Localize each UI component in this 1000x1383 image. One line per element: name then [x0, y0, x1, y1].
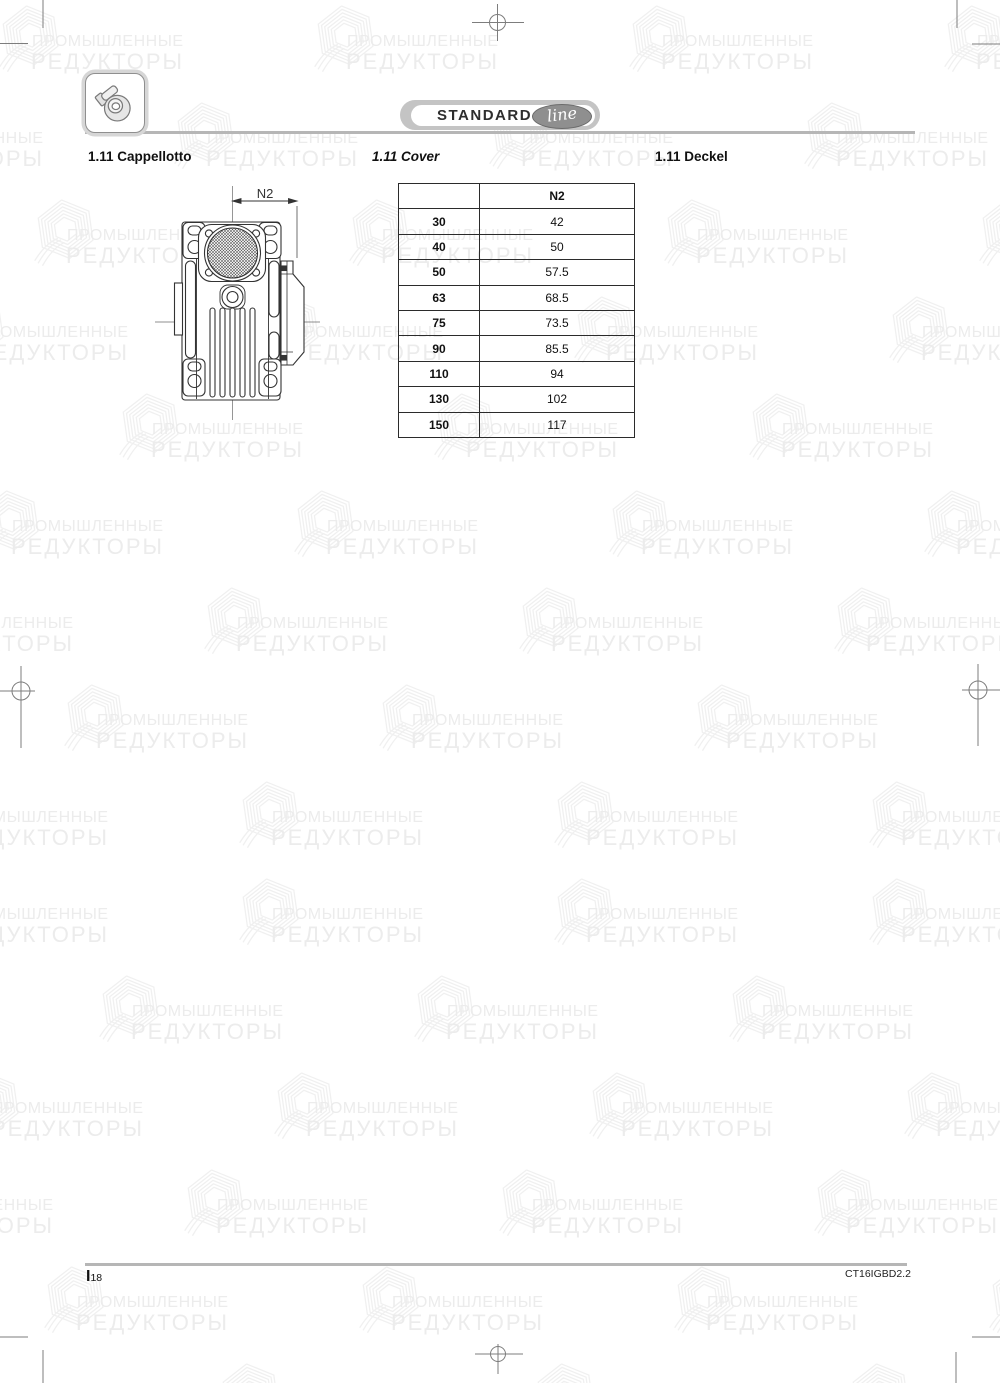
watermark-line1: ПРОМЫШЛЕННЫЕ: [937, 1100, 1000, 1118]
watermark-line1: ПРОМЫШЛЕННЫЕ: [412, 712, 564, 730]
watermark-line1: ПРОМЫШЛЕННЫЕ: [97, 712, 249, 730]
watermark: ПРОМЫШЛЕННЫЕРЕДУКТОРЫ: [975, 199, 1000, 265]
watermark-hexagon-logo: [546, 873, 628, 949]
watermark-line1: ПРОМЫШЛЕННЫЕ: [622, 1100, 774, 1118]
watermark-line2: РЕДУКТОРЫ: [151, 437, 304, 463]
watermark-line1: ПРОМЫШЛЕННЫЕ: [782, 421, 934, 439]
watermark-line2: РЕДУКТОРЫ: [586, 922, 739, 948]
watermark-line1: ПРОМЫШЛЕННЫЕ: [0, 906, 109, 924]
watermark: ПРОМЫШЛЕННЫЕРЕДУКТОРЫ: [985, 1266, 1000, 1332]
watermark-line2: РЕДУКТОРЫ: [956, 534, 1000, 560]
watermark-line1: ПРОМЫШЛЕННЫЕ: [697, 227, 849, 245]
watermark-line2: РЕДУКТОРЫ: [621, 1116, 774, 1142]
watermark-line1: ПРОМЫШЛЕННЫЕ: [392, 1294, 544, 1312]
watermark-line2: РЕДУКТОРЫ: [466, 437, 619, 463]
watermark: ПРОМЫШЛЕННЫЕРЕДУКТОРЫ: [235, 781, 450, 847]
watermark-line2: РЕДУКТОРЫ: [0, 631, 74, 657]
watermark-line2: РЕДУКТОРЫ: [391, 1310, 544, 1336]
watermark: ПРОМЫШЛЕННЫЕРЕДУКТОРЫ: [0, 296, 155, 362]
watermark: ПРОМЫШЛЕННЫЕРЕДУКТОРЫ: [200, 587, 415, 653]
gearbox-cover-drawing: N2: [150, 180, 390, 425]
watermark-line2: РЕДУКТОРЫ: [306, 1116, 459, 1142]
watermark-hexagon-logo: [0, 291, 18, 367]
watermark: ПРОМЫШЛЕННЫЕРЕДУКТОРЫ: [550, 781, 765, 847]
watermark-line1: ПРОМЫШЛЕННЫЕ: [867, 615, 1000, 633]
right-column-slot-upper: [269, 261, 279, 317]
watermark-line1: ПРОМЫШЛЕННЫЕ: [77, 1294, 229, 1312]
section-title-english: 1.11 Cover: [372, 149, 439, 164]
table-row: 7573.5: [399, 310, 635, 335]
watermark-line2: РЕДУКТОРЫ: [0, 1116, 144, 1142]
standard-line-badge: STANDARD line: [400, 100, 600, 130]
watermark: ПРОМЫШЛЕННЫЕРЕДУКТОРЫ: [585, 1072, 800, 1138]
watermark-line2: РЕДУКТОРЫ: [271, 825, 424, 851]
watermark: ПРОМЫШЛЕННЫЕРЕДУКТОРЫ: [900, 1072, 1000, 1138]
watermark: ПРОМЫШЛЕННЫЕРЕДУКТОРЫ: [690, 684, 905, 750]
watermark-hexagon-logo: [0, 1067, 33, 1143]
dimension-label: N2: [257, 186, 274, 201]
watermark-line1: ПРОМЫШЛЕННЫЕ: [447, 1003, 599, 1021]
watermark-hexagon-logo: [826, 582, 908, 658]
watermark-line2: РЕДУКТОРЫ: [326, 534, 479, 560]
watermark: ПРОМЫШЛЕННЫЕРЕДУКТОРЫ: [375, 684, 590, 750]
watermark-line2: РЕДУКТОРЫ: [76, 1310, 229, 1336]
watermark: ПРОМЫШЛЕННЫЕРЕДУКТОРЫ: [310, 5, 525, 71]
watermark-line1: ПРОМЫШЛЕННЫЕ: [132, 1003, 284, 1021]
watermark-line2: РЕДУКТОРЫ: [0, 146, 44, 172]
watermark: ПРОМЫШЛЕННЫЕРЕДУКТОРЫ: [0, 5, 210, 71]
watermark-line2: РЕДУКТОРЫ: [696, 243, 849, 269]
watermark-line1: ПРОМЫШЛЕННЫЕ: [762, 1003, 914, 1021]
watermark-line1: ПРОМЫШЛЕННЫЕ: [347, 33, 499, 51]
watermark-line2: РЕДУКТОРЫ: [131, 1019, 284, 1045]
badge-inner: STANDARD line: [411, 105, 595, 126]
watermark-hexagon-logo: [511, 582, 593, 658]
n2-column-header: N2: [480, 184, 635, 209]
watermark-line2: РЕДУКТОРЫ: [0, 340, 129, 366]
watermark-line2: РЕДУКТОРЫ: [836, 146, 989, 172]
left-tab: [175, 283, 183, 335]
watermark-line2: РЕДУКТОРЫ: [726, 728, 879, 754]
watermark-line2: РЕДУКТОРЫ: [531, 1213, 684, 1239]
watermark-line2: РЕДУКТОРЫ: [206, 146, 359, 172]
table-row: 150117: [399, 412, 635, 437]
watermark: ПРОМЫШЛЕННЫЕРЕДУКТОРЫ: [40, 1266, 255, 1332]
watermark: ПРОМЫШЛЕННЫЕРЕДУКТОРЫ: [0, 102, 70, 168]
right-column-slot-lower: [269, 332, 279, 359]
watermark-line2: РЕДУКТОРЫ: [706, 1310, 859, 1336]
watermark-line2: РЕДУКТОРЫ: [446, 1019, 599, 1045]
watermark-line1: ПРОМЫШЛЕННЫЕ: [0, 324, 129, 342]
watermark: ПРОМЫШЛЕННЫЕРЕДУКТОРЫ: [0, 1363, 115, 1383]
watermark-hexagon-logo: [686, 679, 768, 755]
watermark: ПРОМЫШЛЕННЫЕРЕДУКТОРЫ: [95, 975, 310, 1041]
watermark: ПРОМЫШЛЕННЫЕРЕДУКТОРЫ: [0, 393, 15, 459]
watermark: ПРОМЫШЛЕННЫЕРЕДУКТОРЫ: [0, 587, 100, 653]
watermark-line1: ПРОМЫШЛЕННЫЕ: [902, 906, 1000, 924]
watermark: ПРОМЫШЛЕННЫЕРЕДУКТОРЫ: [495, 1169, 710, 1235]
watermark-line1: ПРОМЫШЛЕННЫЕ: [662, 33, 814, 51]
watermark-hexagon-logo: [916, 485, 998, 561]
watermark-line2: РЕДУКТОРЫ: [271, 922, 424, 948]
watermark-line2: РЕДУКТОРЫ: [96, 728, 249, 754]
watermark-hexagon-logo: [406, 970, 488, 1046]
watermark-hexagon-logo: [351, 1261, 433, 1337]
watermark: ПРОМЫШЛЕННЫЕРЕДУКТОРЫ: [0, 1072, 170, 1138]
watermark-hexagon-logo: [896, 1067, 978, 1143]
watermark-hexagon-logo: [0, 485, 53, 561]
watermark-line2: РЕДУКТОРЫ: [411, 728, 564, 754]
watermark-line1: ПРОМЫШЛЕННЫЕ: [0, 809, 109, 827]
watermark-line2: РЕДУКТОРЫ: [846, 1213, 999, 1239]
watermark-line2: РЕДУКТОРЫ: [641, 534, 794, 560]
watermark: ПРОМЫШЛЕННЫЕРЕДУКТОРЫ: [410, 975, 625, 1041]
watermark: ПРОМЫШЛЕННЫЕРЕДУКТОРЫ: [810, 1169, 1000, 1235]
watermark: ПРОМЫШЛЕННЫЕРЕДУКТОРЫ: [0, 878, 135, 944]
watermark-line1: ПРОМЫШЛЕННЫЕ: [727, 712, 879, 730]
watermark: ПРОМЫШЛЕННЫЕРЕДУКТОРЫ: [60, 684, 275, 750]
watermark-line2: РЕДУКТОРЫ: [781, 437, 934, 463]
watermark-hexagon-logo: [581, 1067, 663, 1143]
watermark-line2: РЕДУКТОРЫ: [31, 49, 184, 75]
watermark: ПРОМЫШЛЕННЫЕРЕДУКТОРЫ: [355, 1266, 570, 1332]
watermark-line2: РЕДУКТОРЫ: [761, 1019, 914, 1045]
watermark-line2: РЕДУКТОРЫ: [586, 825, 739, 851]
watermark-hexagon-logo: [806, 1164, 888, 1240]
watermark-line2: РЕДУКТОРЫ: [346, 49, 499, 75]
section-title-german: 1.11 Deckel: [655, 149, 728, 164]
n2-dimension-table: N2 3042 4050 5057.5 6368.5 7573.5 9085.5…: [398, 183, 635, 438]
watermark-hexagon-logo: [546, 776, 628, 852]
side-cap: [281, 261, 304, 365]
watermark-hexagon-logo: [881, 291, 963, 367]
watermark-hexagon-logo: [861, 776, 943, 852]
watermark-line1: ПРОМЫШЛЕННЫЕ: [552, 615, 704, 633]
watermark: ПРОМЫШЛЕННЫЕРЕДУКТОРЫ: [530, 1363, 745, 1383]
watermark: ПРОМЫШЛЕННЫЕРЕДУКТОРЫ: [940, 5, 1000, 71]
watermark: ПРОМЫШЛЕННЫЕРЕДУКТОРЫ: [0, 781, 135, 847]
left-column-slot: [186, 261, 196, 358]
line-logo: line: [532, 104, 592, 129]
watermark-hexagon-logo: [231, 873, 313, 949]
watermark-line1: ПРОМЫШЛЕННЫЕ: [0, 1100, 144, 1118]
table-row: 130102: [399, 387, 635, 412]
watermark-line1: ПРОМЫШЛЕННЫЕ: [327, 518, 479, 536]
table-row: 4050: [399, 234, 635, 259]
watermark: ПРОМЫШЛЕННЫЕРЕДУКТОРЫ: [0, 490, 190, 556]
badge-label: STANDARD: [437, 107, 532, 124]
watermark-line1: ПРОМЫШЛЕННЫЕ: [707, 1294, 859, 1312]
watermark-line1: ПРОМЫШЛЕННЫЕ: [532, 1197, 684, 1215]
watermark-line1: ПРОМЫШЛЕННЫЕ: [642, 518, 794, 536]
table-row: 9085.5: [399, 336, 635, 361]
cover-mesh: [208, 228, 258, 278]
watermark: ПРОМЫШЛЕННЫЕРЕДУКТОРЫ: [885, 296, 1000, 362]
page-number: I18: [86, 1268, 102, 1286]
watermark-line1: ПРОМЫШЛЕННЫЕ: [0, 130, 44, 148]
watermark-line2: РЕДУКТОРЫ: [236, 631, 389, 657]
footer-rule: [85, 1263, 907, 1266]
size-column-header: [399, 184, 480, 209]
watermark-line2: РЕДУКТОРЫ: [866, 631, 1000, 657]
watermark-line1: ПРОМЫШЛЕННЫЕ: [922, 324, 1000, 342]
watermark-line2: РЕДУКТОРЫ: [0, 1213, 54, 1239]
watermark-hexagon-logo: [721, 970, 803, 1046]
watermark-hexagon-logo: [601, 485, 683, 561]
watermark-hexagon-logo: [176, 1164, 258, 1240]
watermark-hexagon-logo: [861, 873, 943, 949]
document-code: CT16IGBD2.2: [845, 1268, 911, 1280]
watermark: ПРОМЫШЛЕННЫЕРЕДУКТОРЫ: [725, 975, 940, 1041]
watermark-line1: ПРОМЫШЛЕННЫЕ: [272, 906, 424, 924]
watermark: ПРОМЫШЛЕННЫЕРЕДУКТОРЫ: [605, 490, 820, 556]
watermark: ПРОМЫШЛЕННЫЕРЕДУКТОРЫ: [800, 102, 1000, 168]
watermark-hexagon-logo: [306, 0, 388, 76]
watermark-line1: ПРОМЫШЛЕННЫЕ: [902, 809, 1000, 827]
watermark-line2: РЕДУКТОРЫ: [661, 49, 814, 75]
watermark: ПРОМЫШЛЕННЫЕРЕДУКТОРЫ: [865, 878, 1000, 944]
watermark-line1: ПРОМЫШЛЕННЫЕ: [587, 906, 739, 924]
watermark-line1: ПРОМЫШЛЕННЫЕ: [237, 615, 389, 633]
watermark-line2: РЕДУКТОРЫ: [0, 825, 109, 851]
watermark-hexagon-logo: [491, 1164, 573, 1240]
header-rule: [85, 131, 915, 134]
watermark: ПРОМЫШЛЕННЫЕРЕДУКТОРЫ: [745, 393, 960, 459]
watermark: ПРОМЫШЛЕННЫЕРЕДУКТОРЫ: [550, 878, 765, 944]
watermark-line2: РЕДУКТОРЫ: [936, 1116, 1000, 1142]
watermark-hexagon-logo: [656, 194, 738, 270]
table-row: 11094: [399, 361, 635, 386]
worm-gearbox-icon: [85, 73, 145, 133]
watermark: ПРОМЫШЛЕННЫЕРЕДУКТОРЫ: [0, 1169, 80, 1235]
watermark-line2: РЕДУКТОРЫ: [901, 825, 1000, 851]
watermark-line1: ПРОМЫШЛЕННЫЕ: [12, 518, 164, 536]
watermark-line1: ПРОМЫШЛЕННЫЕ: [32, 33, 184, 51]
gearbox-body: [175, 222, 305, 400]
watermark-hexagon-logo: [91, 970, 173, 1046]
watermark-hexagon-logo: [371, 679, 453, 755]
watermark-line1: ПРОМЫШЛЕННЫЕ: [847, 1197, 999, 1215]
watermark-hexagon-logo: [841, 1358, 923, 1383]
watermark-line2: РЕДУКТОРЫ: [521, 146, 674, 172]
section-title-italian: 1.11 Cappellotto: [88, 149, 192, 164]
watermark: ПРОМЫШЛЕННЫЕРЕДУКТОРЫ: [865, 781, 1000, 847]
watermark-hexagon-logo: [36, 1261, 118, 1337]
watermark-line2: РЕДУКТОРЫ: [976, 49, 1000, 75]
watermark-line2: РЕДУКТОРЫ: [11, 534, 164, 560]
watermark-hexagon-logo: [971, 194, 1000, 270]
line-logo-script: line: [532, 101, 592, 127]
watermark-line2: РЕДУКТОРЫ: [901, 922, 1000, 948]
watermark-line1: ПРОМЫШЛЕННЫЕ: [307, 1100, 459, 1118]
hub-bore: [227, 292, 238, 303]
watermark-line1: ПРОМЫШЛЕННЫЕ: [0, 1197, 54, 1215]
watermark-hexagon-logo: [56, 679, 138, 755]
watermark: ПРОМЫШЛЕННЫЕРЕДУКТОРЫ: [215, 1363, 430, 1383]
watermark-hexagon-logo: [0, 0, 73, 76]
watermark-line2: РЕДУКТОРЫ: [921, 340, 1000, 366]
watermark: ПРОМЫШЛЕННЫЕРЕДУКТОРЫ: [180, 1169, 395, 1235]
watermark: ПРОМЫШЛЕННЫЕРЕДУКТОРЫ: [660, 199, 875, 265]
watermark-hexagon-logo: [621, 0, 703, 76]
table-header-row: N2: [399, 184, 635, 209]
catalog-page: ПРОМЫШЛЕННЫЕРЕДУКТОРЫПРОМЫШЛЕННЫЕРЕДУКТО…: [0, 0, 1000, 1383]
watermark-hexagon-logo: [211, 1358, 293, 1383]
watermark-hexagon-logo: [741, 388, 823, 464]
watermark-line1: ПРОМЫШЛЕННЫЕ: [587, 809, 739, 827]
watermark-line2: РЕДУКТОРЫ: [216, 1213, 369, 1239]
page-number-value: 18: [90, 1272, 102, 1284]
watermark-line1: ПРОМЫШЛЕННЫЕ: [272, 809, 424, 827]
watermark-hexagon-logo: [666, 1261, 748, 1337]
watermark: ПРОМЫШЛЕННЫЕРЕДУКТОРЫ: [515, 587, 730, 653]
watermark: ПРОМЫШЛЕННЫЕРЕДУКТОРЫ: [845, 1363, 1000, 1383]
watermark-line2: РЕДУКТОРЫ: [551, 631, 704, 657]
watermark: ПРОМЫШЛЕННЫЕРЕДУКТОРЫ: [235, 878, 450, 944]
watermark-hexagon-logo: [936, 0, 1000, 76]
watermark: ПРОМЫШЛЕННЫЕРЕДУКТОРЫ: [170, 102, 385, 168]
watermark-hexagon-logo: [526, 1358, 608, 1383]
watermark-hexagon-logo: [196, 582, 278, 658]
table-row: 3042: [399, 209, 635, 234]
watermark-hexagon-logo: [26, 194, 108, 270]
table-row: 5057.5: [399, 260, 635, 285]
watermark-hexagon-logo: [286, 485, 368, 561]
watermark-hexagon-logo: [266, 1067, 348, 1143]
watermark: ПРОМЫШЛЕННЫЕРЕДУКТОРЫ: [920, 490, 1000, 556]
watermark-line1: ПРОМЫШЛЕННЫЕ: [0, 615, 74, 633]
watermark-hexagon-logo: [981, 1261, 1000, 1337]
watermark-line1: ПРОМЫШЛЕННЫЕ: [217, 1197, 369, 1215]
watermark-hexagon-logo: [796, 97, 878, 173]
watermark: ПРОМЫШЛЕННЫЕРЕДУКТОРЫ: [290, 490, 505, 556]
watermark-line1: ПРОМЫШЛЕННЫЕ: [977, 33, 1000, 51]
watermark: ПРОМЫШЛЕННЫЕРЕДУКТОРЫ: [270, 1072, 485, 1138]
watermark: ПРОМЫШЛЕННЫЕРЕДУКТОРЫ: [830, 587, 1000, 653]
watermark: ПРОМЫШЛЕННЫЕРЕДУКТОРЫ: [625, 5, 840, 71]
watermark-hexagon-logo: [231, 776, 313, 852]
watermark-line1: ПРОМЫШЛЕННЫЕ: [957, 518, 1000, 536]
table-row: 6368.5: [399, 285, 635, 310]
watermark-line2: РЕДУКТОРЫ: [0, 922, 109, 948]
